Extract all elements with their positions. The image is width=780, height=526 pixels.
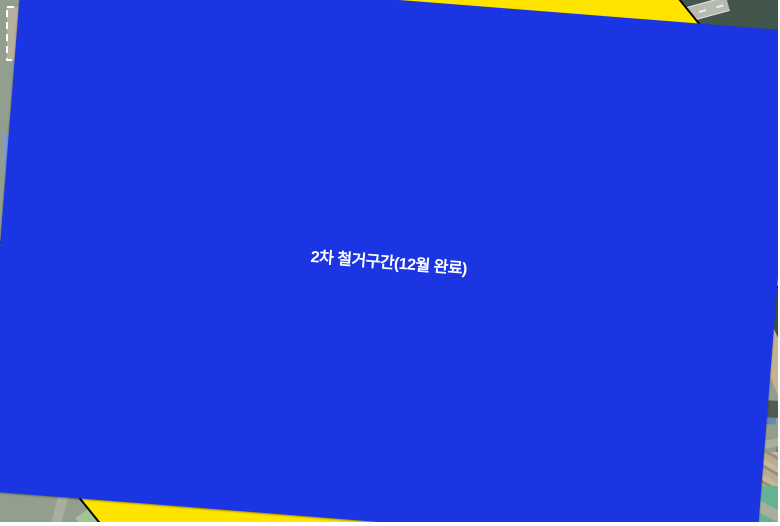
phase2-demolition-label: 2차 철거구간(12월 완료) xyxy=(0,0,778,522)
aerial-map: 순천시청(신청사) 순천교 순천 동천 종합버스터미널 순고 오거리 아랫장 사… xyxy=(0,0,780,526)
aerial-photo: 순천시청(신청사) 순천교 순천 동천 종합버스터미널 순고 오거리 아랫장 사… xyxy=(0,0,778,522)
